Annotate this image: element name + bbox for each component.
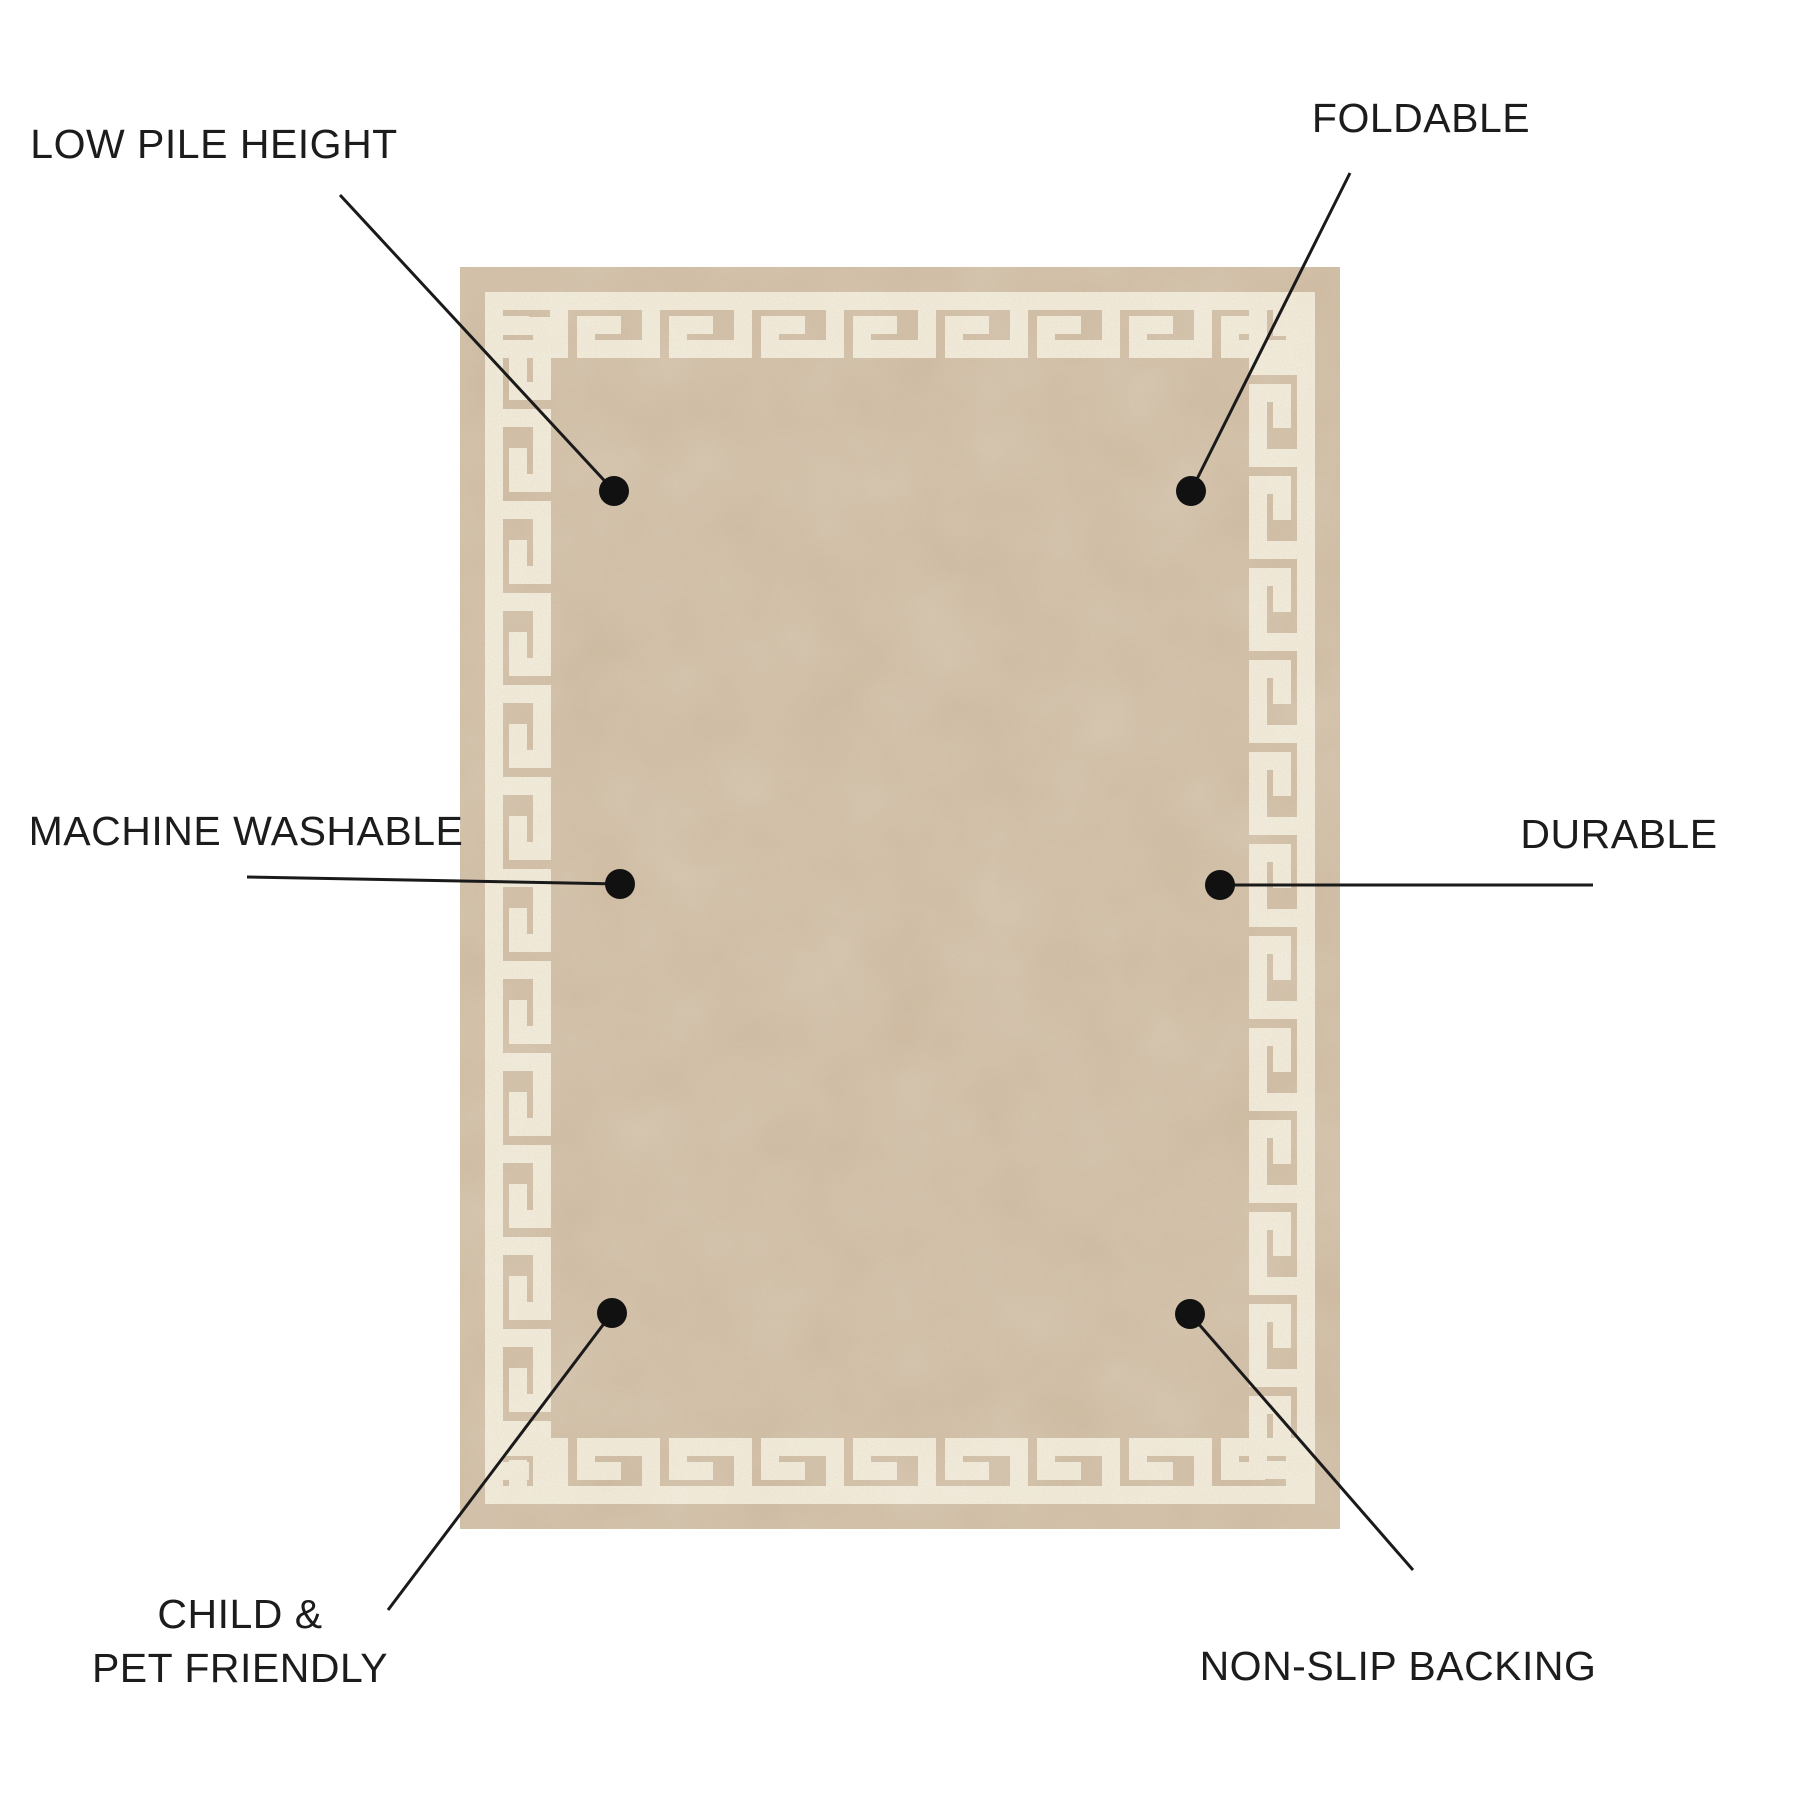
label-durable: DURABLE: [1520, 807, 1717, 861]
rug-image: [460, 267, 1340, 1529]
label-machine-washable: MACHINE WASHABLE: [29, 804, 464, 858]
label-low-pile-height: LOW PILE HEIGHT: [30, 117, 397, 171]
label-non-slip-backing: NON-SLIP BACKING: [1200, 1639, 1597, 1693]
figure-canvas: LOW PILE HEIGHT FOLDABLE MACHINE WASHABL…: [0, 0, 1800, 1800]
label-foldable: FOLDABLE: [1312, 91, 1530, 145]
rug-texture-grain: [460, 267, 1340, 1529]
label-child-pet-friendly: CHILD & PET FRIENDLY: [92, 1587, 388, 1695]
